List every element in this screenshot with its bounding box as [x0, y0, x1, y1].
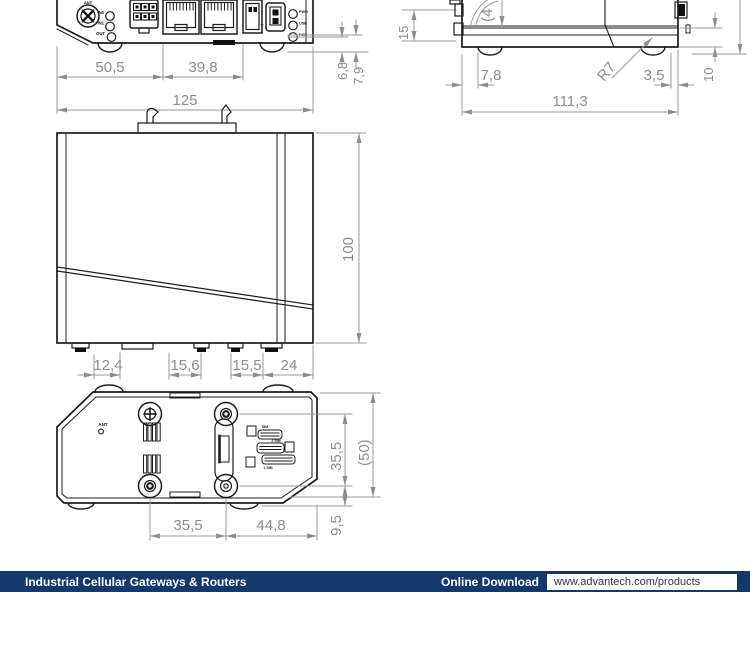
- top-view: 100 12,4 15,6 15,5 24: [57, 105, 366, 379]
- dim-bottom-screw-to-edge: 44,8: [256, 517, 285, 534]
- dim-bottom-screw-span-h: 35,5: [173, 517, 202, 534]
- din-rail-clip: [138, 105, 236, 133]
- io-connector: [130, 0, 158, 33]
- io-label-out: OUT: [96, 31, 105, 36]
- pwr-plus-label: +: [260, 23, 264, 29]
- products-url[interactable]: www.advantech.com/products: [547, 576, 700, 588]
- center-slot: [215, 419, 233, 481]
- dimensional-drawing: ANT IN0 IN1 OUT: [0, 0, 750, 570]
- front-view: ANT IN0 IN1 OUT: [57, 0, 456, 113]
- footer-category-title: Industrial Cellular Gateways & Routers: [25, 575, 246, 589]
- front-foot-left: [98, 43, 122, 52]
- vent-slots: [144, 423, 161, 473]
- dim-front-width-total: 125: [172, 92, 197, 109]
- bottom-ant-label: ANT: [98, 422, 107, 427]
- dim-clip-height: 15: [396, 26, 411, 40]
- top-view-dimensions: [78, 133, 366, 379]
- dim-top-foot4: 24: [281, 357, 298, 374]
- dim-side-chamfer: 3,5: [644, 67, 665, 84]
- led-label-pwr: PWR: [299, 10, 308, 14]
- pwr-minus-label: -: [261, 9, 263, 15]
- dim-bottom-body-depth: (50): [356, 439, 373, 466]
- power-connector: - +: [260, 3, 285, 31]
- dim-top-height-total: 100: [340, 237, 357, 262]
- dim-front-width-left: 50,5: [95, 59, 124, 76]
- led-label-usb: USB: [299, 22, 307, 26]
- url-box[interactable]: www.advantech.com/products: [547, 574, 737, 590]
- dim-top-foot3: 15,5: [232, 357, 261, 374]
- dim-bottom-edge-offset: 9,5: [328, 515, 345, 536]
- dim-side-clipped: (4: [479, 9, 496, 22]
- footer-download-area: Online Download www.advantech.com/produc…: [441, 571, 737, 592]
- ant-label: ANT: [84, 0, 93, 5]
- antenna-connector: ANT: [77, 0, 99, 27]
- screw-bosses: [139, 403, 238, 498]
- eth0-port: [163, 0, 199, 34]
- dim-front-v-small2: 7,9: [351, 67, 366, 85]
- sim1-label: 1 SIM: [263, 466, 272, 470]
- io-label-in0: IN0: [97, 10, 104, 15]
- ant-marking: ANT: [98, 422, 107, 434]
- side-foot-left: [478, 47, 502, 55]
- io-leds: IN0 IN1 OUT: [96, 10, 116, 41]
- dim-front-v-small1: 6,8: [335, 62, 350, 80]
- eth1-port: [201, 0, 237, 34]
- dim-side-radius: R7: [594, 59, 619, 85]
- side-foot-right: [641, 47, 665, 55]
- din-clip-tabs: [450, 0, 463, 35]
- usb-port: [243, 0, 262, 33]
- dim-top-foot1: 12,4: [93, 357, 122, 374]
- dim-top-foot2: 15,6: [170, 357, 199, 374]
- dim-side-base-height: 10: [701, 68, 716, 82]
- sim-top-label: SIM: [262, 425, 268, 429]
- online-download-label: Online Download: [441, 575, 539, 589]
- datasheet-page: ANT IN0 IN1 OUT: [0, 0, 750, 650]
- io-label-in1: IN1: [97, 21, 104, 26]
- sim2-label: 2 SIM: [271, 439, 280, 443]
- dim-side-depth-total: 111,3: [552, 93, 587, 110]
- front-bottom-slot: [213, 40, 235, 45]
- side-view: (4 7,8 3,5 111,3 R7 10: [446, 0, 746, 115]
- top-view-feet: [72, 343, 282, 352]
- footer-bar: Industrial Cellular Gateways & Routers O…: [0, 571, 750, 592]
- dim-front-width-mid: 39,8: [188, 59, 217, 76]
- front-foot-right: [260, 43, 284, 52]
- dim-bottom-screw-span-v: 35,5: [328, 442, 345, 471]
- sim-markings: SIM 2 SIM 1 SIM: [246, 425, 295, 470]
- bottom-view: ANT SIM 2 SIM 1 SIM: [57, 385, 380, 540]
- dim-side-foot-offset: 7,8: [481, 67, 502, 84]
